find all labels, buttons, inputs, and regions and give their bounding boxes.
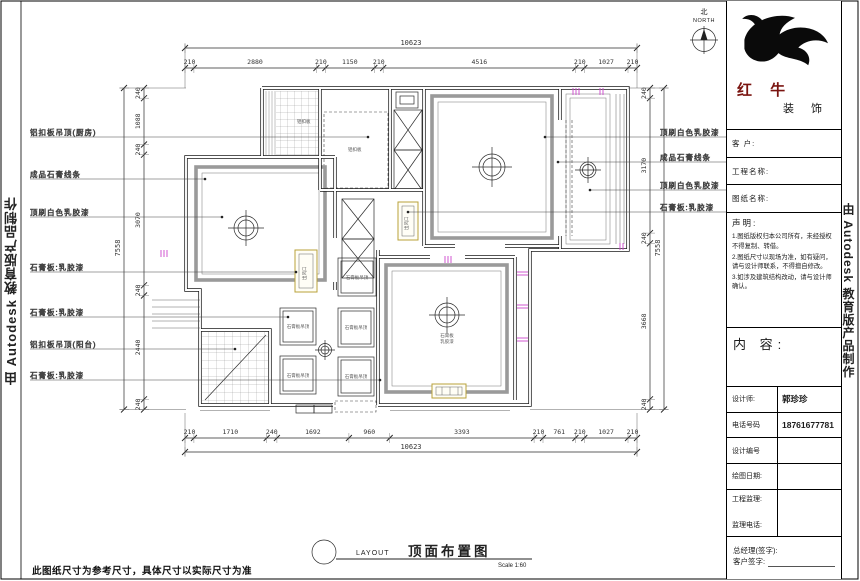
- dim-label: 1150: [342, 58, 358, 66]
- bull-logo: [729, 5, 839, 77]
- ac-vent-label: 出风口: [301, 267, 308, 281]
- dim-label: 210: [574, 58, 586, 66]
- footer-title-block: LAYOUT 顶面布置图 Scale 1:60: [312, 540, 532, 569]
- dim-label: 10623: [400, 443, 421, 451]
- bath-note: 铝扣板: [297, 118, 311, 125]
- north-label-cn: 北: [701, 8, 708, 16]
- north-label-en: NORTH: [693, 18, 715, 24]
- project-label: 工程名称:: [727, 166, 777, 177]
- company-logo-cell: 红 牛 装 饰: [727, 1, 841, 130]
- dim-label: 3668: [640, 313, 648, 329]
- ac-vent-label: 出风口: [403, 217, 410, 231]
- annotation-label: 顶刷白色乳胶漆: [30, 207, 90, 217]
- ceiling-lamp-living: [472, 147, 512, 187]
- dim-label: 7558: [114, 240, 122, 257]
- content-label: 内 容:: [733, 337, 786, 352]
- design-no-value: [778, 438, 841, 463]
- brand-subname: 装 饰: [783, 100, 829, 116]
- phone-row: 电话号码 18761677781: [727, 413, 841, 439]
- manager-sign-label: 总经理(签字):: [733, 545, 835, 556]
- dim-label: 240: [134, 87, 142, 99]
- supervisor-phone-label: 监理电话:: [732, 520, 777, 530]
- annotation-label: 成品石膏线条: [30, 169, 81, 179]
- drawing-title: 顶面布置图: [408, 543, 491, 559]
- dim-label: 210: [574, 428, 586, 436]
- annotation-label: 铝扣板吊顶(厨房): [30, 127, 97, 137]
- dimension-bottom: 210 1710 240 1692 960 3393 210 761 210 1…: [182, 413, 640, 457]
- dim-label: 10623: [400, 39, 421, 47]
- bedroom2-molding: [386, 265, 507, 392]
- design-no-row: 设计编号: [727, 438, 841, 464]
- dim-label: 210: [373, 58, 385, 66]
- dim-label: 210: [184, 428, 196, 436]
- draw-date-label: 绘图日期:: [727, 464, 778, 489]
- dim-label: 3170: [640, 158, 648, 174]
- annotation-label: 石膏板:乳胶漆: [30, 370, 84, 380]
- coffer-label: 石膏板吊顶: [287, 323, 310, 330]
- dim-label: 240: [266, 428, 278, 436]
- bedroom2-note: 石膏板: [440, 332, 454, 339]
- designer-value: 郭珍珍: [778, 387, 841, 412]
- client-signature-line: [768, 556, 835, 567]
- designer-row: 设计师: 郭珍珍: [727, 387, 841, 413]
- phone-label: 电话号码: [727, 413, 778, 438]
- statement-item: 2.图纸尺寸以现场为准，如有疑问，请与设计师联系，不得擅自修改。: [732, 253, 836, 271]
- dim-label: 1088: [134, 113, 142, 129]
- drawing-scale: Scale 1:60: [498, 563, 527, 569]
- annotation-label: 顶刷白色乳胶漆: [660, 180, 720, 190]
- dim-label: 2440: [134, 339, 142, 355]
- dim-label: 1027: [598, 58, 614, 66]
- dim-label: 2880: [247, 58, 263, 66]
- statement-item: 3.如涉及建筑结构改动，请与设计师确认。: [732, 273, 836, 291]
- dim-label: 4516: [471, 58, 487, 66]
- dim-label: 210: [627, 58, 639, 66]
- entry-door: [335, 401, 376, 412]
- coffer-label: 石膏板吊顶: [287, 372, 310, 379]
- annotation-label: 石膏板:乳胶漆: [660, 202, 714, 212]
- ceiling-lamp-dining: [315, 340, 335, 360]
- statement-title: 声明:: [732, 217, 836, 229]
- design-no-label: 设计编号: [727, 438, 778, 463]
- ac-vent-boxes: 出风口 出风口: [295, 202, 466, 398]
- x-box-column-kitchen: [394, 92, 422, 190]
- drawing-name-label: 图纸名称:: [727, 193, 777, 204]
- dim-label: 240: [640, 232, 648, 244]
- annotation-label: 成品石膏线条: [660, 152, 711, 162]
- supervisor-label: 工程监理:: [732, 494, 777, 504]
- dim-label: 761: [553, 428, 565, 436]
- statement-cell: 声明: 1.图纸版权归本公司所有，未经授权不得复制、转借。 2.图纸尺寸以现场为…: [727, 213, 841, 328]
- annotation-label: 石膏板:乳胶漆: [30, 262, 84, 272]
- dim-label: 240: [640, 398, 648, 410]
- designer-label: 设计师:: [727, 387, 778, 412]
- ceiling-lamp-bedroom: [228, 210, 264, 246]
- dim-label: 240: [134, 144, 142, 156]
- reference-note: 此图纸尺寸为参考尺寸，具体尺寸以实际尺寸为准: [32, 563, 252, 577]
- signature-cell: 总经理(签字): 客户签字:: [727, 537, 841, 579]
- phone-value: 18761677781: [778, 413, 841, 438]
- draw-date-row: 绘图日期:: [727, 464, 841, 490]
- coffer-label: 石膏板吊顶: [346, 274, 369, 281]
- annotation-label: 石膏板:乳胶漆: [30, 307, 84, 317]
- footer-layout-label: LAYOUT: [356, 550, 390, 557]
- dim-label: 1027: [598, 428, 614, 436]
- dim-label: 1692: [305, 428, 321, 436]
- dim-label: 210: [184, 58, 196, 66]
- title-block: 红 牛 装 饰 客 户: 工程名称: 图纸名称: 声明: 1.图纸版权归本公司所…: [726, 1, 842, 579]
- brand-name: 红 牛: [737, 79, 792, 100]
- annotation-label: 顶刷白色乳胶漆: [660, 127, 720, 137]
- dim-label: 210: [533, 428, 545, 436]
- dim-label: 1710: [222, 428, 238, 436]
- dimension-left: 240 1088 240 3070 240 2440 240 7558: [114, 85, 186, 413]
- client-row: 客 户:: [727, 130, 841, 158]
- cad-drawing-sheet: { "watermark": { "text": "由 Autodesk 教育版…: [0, 0, 860, 581]
- annotations-right: 顶刷白色乳胶漆 成品石膏线条 顶刷白色乳胶漆 石膏板:乳胶漆: [407, 127, 726, 213]
- dimension-top: 10623 210 2880 210 1150 210 4516 210 102…: [182, 39, 640, 88]
- drawing-name-row: 图纸名称:: [727, 185, 841, 213]
- dim-label: 240: [640, 87, 648, 99]
- dim-label: 3070: [134, 212, 142, 228]
- supervisor-cell: 工程监理: 监理电话:: [727, 490, 841, 537]
- dim-label: 7558: [654, 240, 662, 257]
- dim-label: 960: [363, 428, 375, 436]
- statement-item: 1.图纸版权归本公司所有，未经授权不得复制、转借。: [732, 232, 836, 250]
- annotation-label: 铝扣板吊顶(阳台): [30, 339, 97, 349]
- dim-label: 240: [134, 398, 142, 410]
- client-label: 客 户:: [727, 138, 777, 149]
- dim-label: 3393: [454, 428, 470, 436]
- dim-label: 240: [134, 284, 142, 296]
- kitchen-note: 铝扣板: [348, 146, 362, 153]
- bedroom2-note: 乳胶漆: [440, 338, 454, 345]
- coffer-label: 石膏板吊顶: [345, 324, 368, 331]
- dim-label: 210: [627, 428, 639, 436]
- x-box-column-hall: [342, 199, 374, 278]
- content-cell: 内 容:: [727, 328, 841, 387]
- draw-date-value: [778, 464, 841, 489]
- coffer-label: 石膏板吊顶: [345, 373, 368, 380]
- client-sign-label: 客户签字:: [733, 556, 765, 567]
- project-row: 工程名称:: [727, 158, 841, 186]
- ceiling-lamp-bedroom2: [429, 297, 465, 333]
- ceiling-lamp-balcony: [575, 157, 601, 183]
- north-arrow: 北 NORTH: [690, 8, 718, 54]
- dim-label: 210: [315, 58, 327, 66]
